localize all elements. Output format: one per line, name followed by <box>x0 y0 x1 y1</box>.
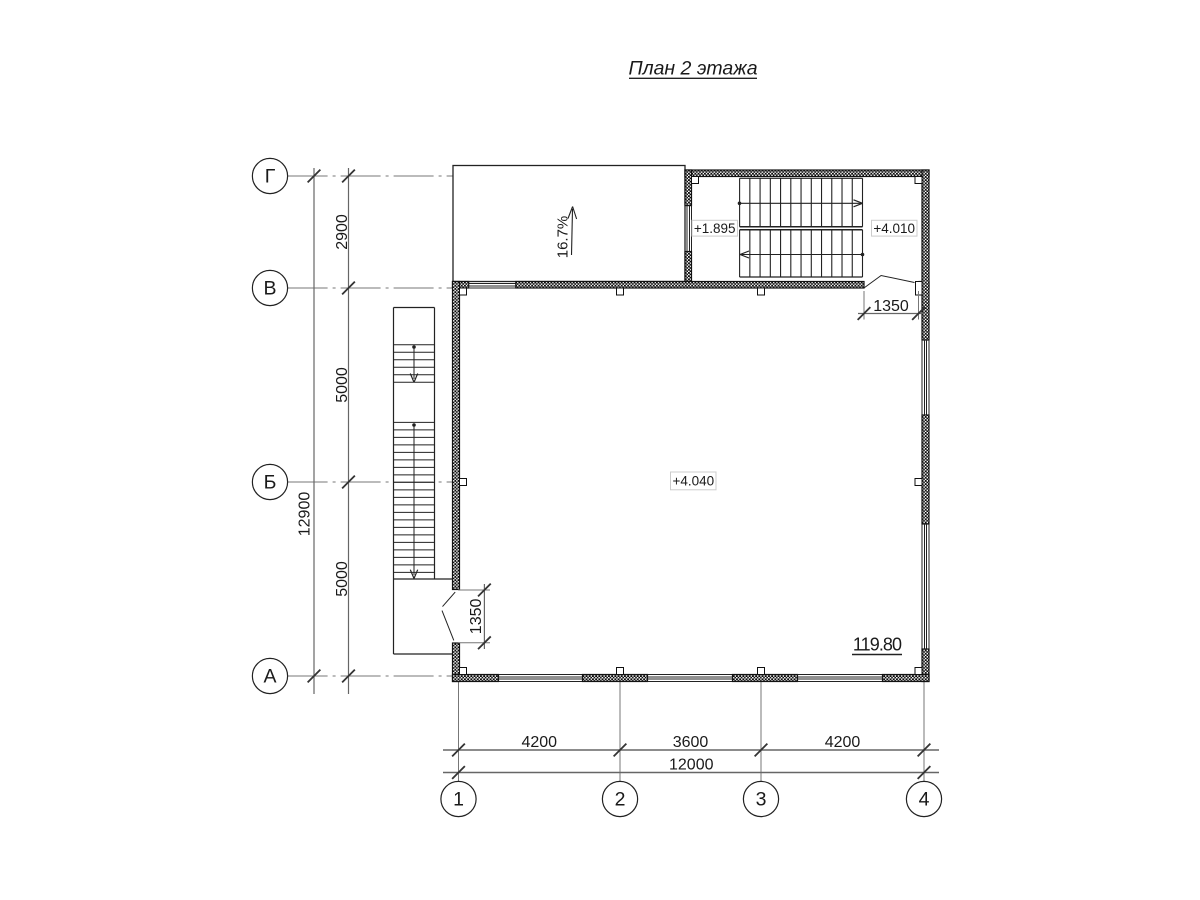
svg-text:План 2 этажа: План 2 этажа <box>628 58 757 80</box>
svg-text:5000: 5000 <box>334 367 351 403</box>
svg-text:1350: 1350 <box>468 599 485 635</box>
svg-text:+1.895: +1.895 <box>694 221 736 236</box>
svg-text:1: 1 <box>453 789 464 811</box>
svg-text:В: В <box>263 278 276 300</box>
svg-text:3: 3 <box>756 789 767 811</box>
svg-text:12000: 12000 <box>669 757 714 774</box>
svg-text:12900: 12900 <box>297 492 314 537</box>
svg-text:16.7%: 16.7% <box>555 216 572 259</box>
svg-text:4: 4 <box>919 789 930 811</box>
svg-text:4200: 4200 <box>521 734 557 751</box>
svg-text:1350: 1350 <box>873 298 909 315</box>
svg-text:5000: 5000 <box>334 561 351 597</box>
svg-text:4200: 4200 <box>825 734 861 751</box>
svg-text:+4.010: +4.010 <box>873 221 915 236</box>
svg-text:Г: Г <box>265 166 276 188</box>
svg-text:2900: 2900 <box>334 214 351 250</box>
svg-text:119.80: 119.80 <box>853 635 902 655</box>
svg-text:А: А <box>263 666 276 688</box>
svg-text:Б: Б <box>264 472 277 494</box>
svg-text:3600: 3600 <box>673 734 709 751</box>
svg-text:+4.040: +4.040 <box>672 474 714 489</box>
svg-text:2: 2 <box>615 789 626 811</box>
